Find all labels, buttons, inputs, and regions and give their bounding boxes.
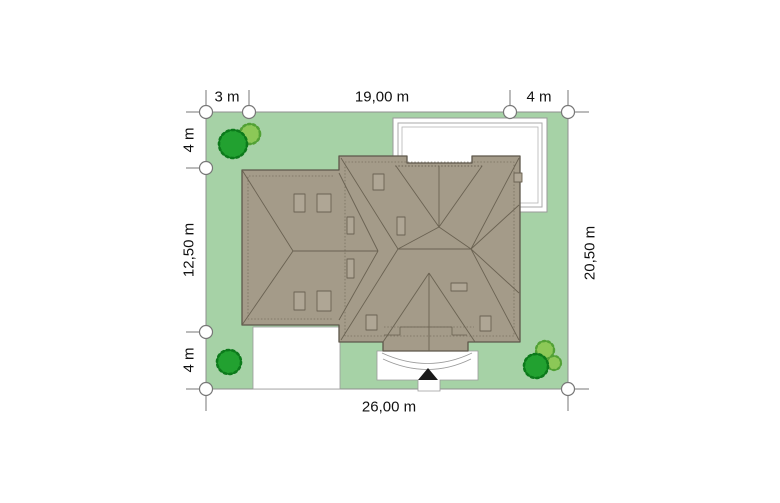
dimension-label-left-bottom-setback: 4 m	[181, 347, 198, 372]
dimension-marker-circle	[200, 162, 213, 175]
chimney	[514, 173, 522, 182]
dimension-marker-circle	[200, 383, 213, 396]
dimension-label-lot-depth: 20,50 m	[582, 226, 599, 280]
chimney	[317, 194, 331, 212]
roof-window	[397, 217, 405, 235]
chimney	[480, 316, 491, 331]
chimney	[294, 292, 305, 310]
dimension-label-left-top-setback: 4 m	[181, 127, 198, 152]
roof-window	[347, 217, 354, 234]
chimney	[366, 315, 377, 330]
house-roof	[242, 156, 522, 351]
dimension-label-top-right-setback: 4 m	[526, 89, 551, 106]
dimension-marker-circle	[243, 106, 256, 119]
dimension-label-top-left-setback: 3 m	[214, 89, 239, 106]
driveway	[253, 327, 340, 389]
dimension-label-house-width: 19,00 m	[355, 89, 409, 106]
site-plan: 3 m 19,00 m 4 m 4 m 12,50 m 4 m 20,50 m …	[0, 0, 780, 503]
dimension-marker-circle	[200, 326, 213, 339]
chimney	[294, 194, 305, 212]
dimension-marker-circle	[562, 383, 575, 396]
chimney	[373, 174, 384, 190]
dimension-marker-circle	[200, 106, 213, 119]
dimension-marker-circle	[562, 106, 575, 119]
roof-window	[347, 259, 354, 278]
chimney	[451, 283, 467, 291]
dimension-label-house-depth: 12,50 m	[181, 223, 198, 277]
dimension-label-lot-width: 26,00 m	[362, 399, 416, 416]
site-plan-drawing	[0, 0, 780, 503]
chimney	[317, 291, 331, 311]
dimension-marker-circle	[504, 106, 517, 119]
